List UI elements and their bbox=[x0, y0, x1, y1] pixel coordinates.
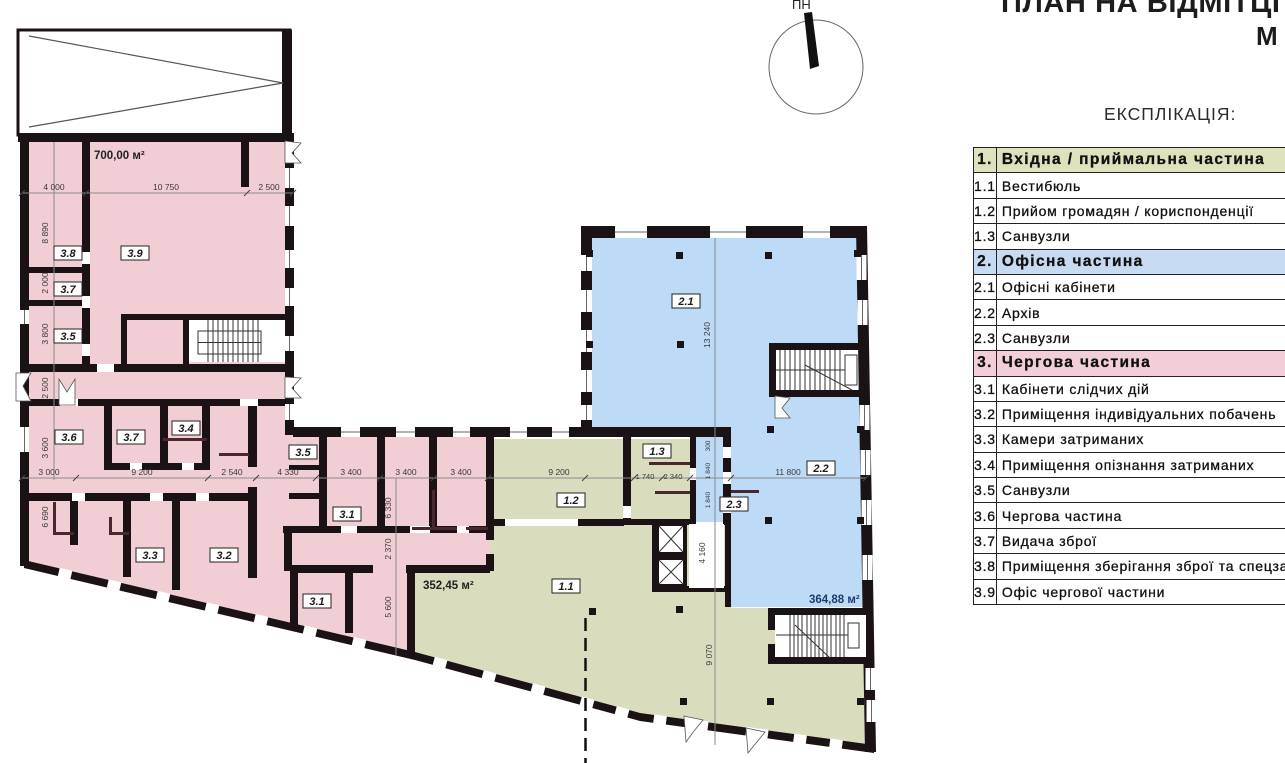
svg-text:1 840: 1 840 bbox=[705, 491, 712, 508]
svg-text:6 330: 6 330 bbox=[383, 497, 393, 519]
svg-text:2 500: 2 500 bbox=[40, 377, 50, 399]
svg-text:1 840: 1 840 bbox=[705, 462, 712, 479]
svg-text:3.5: 3.5 bbox=[295, 447, 311, 459]
svg-text:9 200: 9 200 bbox=[548, 467, 570, 477]
svg-text:2 500: 2 500 bbox=[258, 182, 280, 192]
svg-text:3 400: 3 400 bbox=[340, 467, 362, 477]
svg-text:9 200: 9 200 bbox=[131, 467, 153, 477]
svg-text:3 400: 3 400 bbox=[450, 467, 472, 477]
svg-text:1.2: 1.2 bbox=[563, 495, 578, 507]
svg-text:2 000: 2 000 bbox=[40, 272, 50, 294]
svg-text:3.6: 3.6 bbox=[61, 432, 77, 444]
svg-text:3.5: 3.5 bbox=[60, 331, 76, 343]
svg-text:11 800: 11 800 bbox=[775, 467, 801, 477]
svg-text:3.7: 3.7 bbox=[60, 284, 76, 296]
svg-text:5 600: 5 600 bbox=[383, 596, 393, 618]
svg-text:3.4: 3.4 bbox=[178, 423, 193, 435]
svg-text:300: 300 bbox=[705, 440, 712, 451]
svg-text:2 540: 2 540 bbox=[221, 467, 243, 477]
svg-text:3 400: 3 400 bbox=[395, 467, 417, 477]
svg-text:3.2: 3.2 bbox=[216, 550, 231, 562]
svg-text:13 240: 13 240 bbox=[702, 322, 712, 348]
svg-text:2 340: 2 340 bbox=[664, 472, 683, 481]
svg-text:3.9: 3.9 bbox=[127, 248, 143, 260]
svg-text:700,00 м²: 700,00 м² bbox=[94, 150, 145, 162]
svg-text:2.3: 2.3 bbox=[725, 499, 741, 511]
svg-text:352,45 м²: 352,45 м² bbox=[423, 580, 474, 592]
svg-text:ПН: ПН bbox=[792, 0, 811, 12]
svg-text:3 600: 3 600 bbox=[40, 437, 50, 459]
svg-text:9 070: 9 070 bbox=[704, 644, 714, 666]
svg-text:3 000: 3 000 bbox=[38, 467, 60, 477]
svg-text:3.1: 3.1 bbox=[339, 509, 354, 521]
svg-text:3 800: 3 800 bbox=[40, 323, 50, 345]
svg-text:1 740: 1 740 bbox=[636, 472, 655, 481]
svg-text:1.3: 1.3 bbox=[649, 446, 664, 458]
svg-text:3.8: 3.8 bbox=[60, 248, 76, 260]
svg-text:2.2: 2.2 bbox=[812, 463, 828, 475]
svg-text:364,88 м²: 364,88 м² bbox=[809, 594, 860, 606]
svg-text:3.1: 3.1 bbox=[309, 596, 324, 608]
svg-text:4 330: 4 330 bbox=[277, 467, 299, 477]
svg-text:4 000: 4 000 bbox=[43, 182, 65, 192]
svg-text:3.3: 3.3 bbox=[142, 550, 157, 562]
svg-text:10 750: 10 750 bbox=[153, 182, 179, 192]
svg-text:2 370: 2 370 bbox=[383, 538, 393, 560]
svg-text:1.1: 1.1 bbox=[558, 581, 573, 593]
svg-text:8 890: 8 890 bbox=[40, 222, 50, 244]
svg-text:6 690: 6 690 bbox=[40, 506, 50, 528]
svg-text:4 160: 4 160 bbox=[697, 542, 707, 564]
svg-text:2.1: 2.1 bbox=[677, 296, 693, 308]
svg-text:3.7: 3.7 bbox=[123, 432, 139, 444]
